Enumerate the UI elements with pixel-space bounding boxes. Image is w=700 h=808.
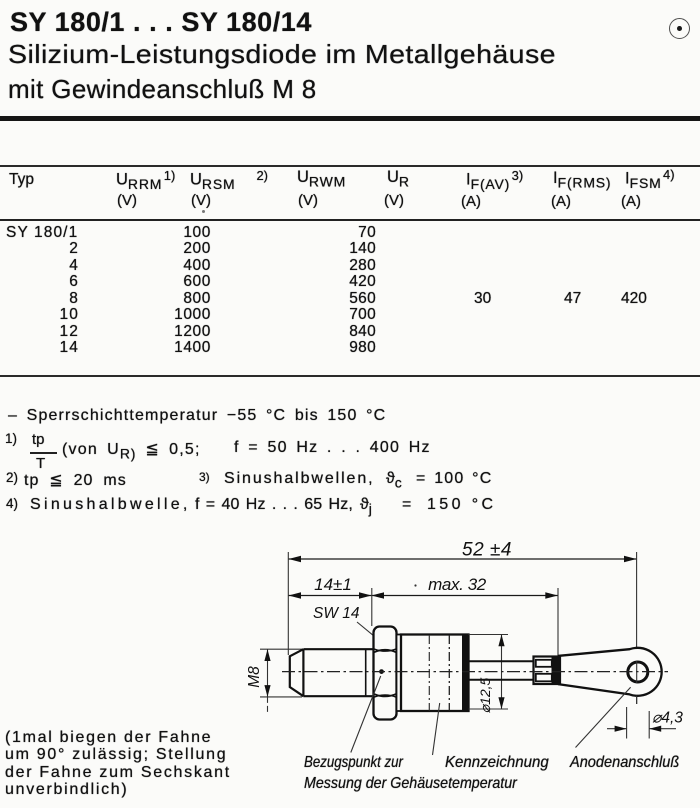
svg-text:14±1: 14±1	[314, 575, 352, 594]
svg-text:⌀4,3: ⌀4,3	[652, 710, 683, 727]
svg-text:52 ±4: 52 ±4	[462, 540, 512, 561]
svg-text:M8: M8	[246, 666, 263, 688]
svg-text:SW 14: SW 14	[313, 605, 360, 622]
svg-text:max. 32: max. 32	[428, 575, 487, 594]
svg-text:⌀12,5: ⌀12,5	[477, 677, 493, 713]
